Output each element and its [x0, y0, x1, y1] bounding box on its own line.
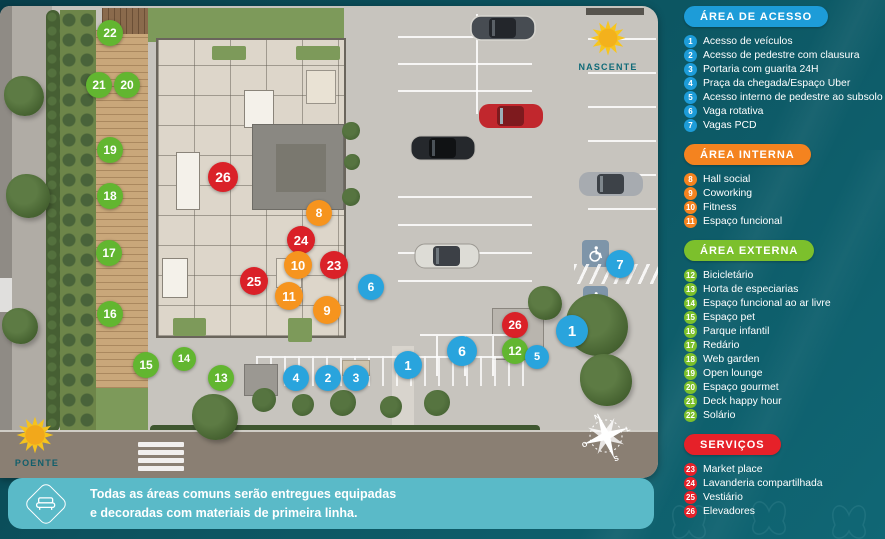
poente-label: POENTE: [6, 458, 68, 468]
legend-item-label: Solário: [703, 410, 735, 421]
bush: [292, 394, 314, 416]
bush: [252, 388, 276, 412]
legend-item-label: Espaço pet: [703, 312, 755, 323]
legend-item-label: Redário: [703, 340, 739, 351]
legend-item-23: 23Market place: [684, 462, 884, 476]
legend-item-2: 2Acesso de pedestre com clausura: [684, 48, 884, 62]
legend-item-number: 21: [684, 395, 697, 408]
legend-item-label: Hall social: [703, 174, 750, 185]
plan-marker-25: 25: [240, 267, 268, 295]
plan-marker-11: 11: [275, 282, 303, 310]
legend-item-4: 4Praça da chegada/Espaço Uber: [684, 76, 884, 90]
legend-item-6: 6Vaga rotativa: [684, 104, 884, 118]
courtyard-green: [288, 318, 312, 342]
plan-marker-17: 17: [96, 240, 122, 266]
legend-item-24: 24Lavanderia compartilhada: [684, 476, 884, 490]
legend-item-number: 2: [684, 49, 697, 62]
plan-marker-14: 14: [172, 347, 196, 371]
legend-item-number: 10: [684, 201, 697, 214]
legend-item-label: Bicicletário: [703, 270, 753, 281]
legend-header-acesso: ÁREA DE ACESSO: [684, 6, 828, 27]
legend-item-number: 20: [684, 381, 697, 394]
tree: [192, 394, 238, 440]
plan-marker-24: 24: [287, 226, 315, 254]
parking-line: [398, 63, 532, 65]
legend-item-1: 1Acesso de veículos: [684, 34, 884, 48]
legend-item-number: 23: [684, 463, 697, 476]
legend-item-number: 13: [684, 283, 697, 296]
legend-item-label: Praça da chegada/Espaço Uber: [703, 78, 850, 89]
plan-marker-15: 15: [133, 352, 159, 378]
parking-line: [492, 336, 494, 376]
sun-poente-icon: [12, 412, 58, 458]
crosswalk-stripe: [138, 458, 184, 463]
tree: [528, 286, 562, 320]
compass-rose: N L S O: [578, 408, 634, 464]
legend-header-externa: ÁREA EXTERNA: [684, 240, 814, 261]
legend-item-11: 11Espaço funcional: [684, 214, 884, 228]
disclaimer-banner: Todas as áreas comuns serão entregues eq…: [8, 478, 654, 529]
legend-item-label: Deck happy hour: [703, 396, 782, 407]
bush: [344, 154, 360, 170]
disclaimer-line-2: e decoradas com materiais de primeira li…: [90, 504, 396, 522]
disclaimer-text: Todas as áreas comuns serão entregues eq…: [90, 485, 396, 521]
legend-item-label: Open lounge: [703, 368, 763, 379]
legend-header-servicos: SERVIÇOS: [684, 434, 781, 455]
legend-item-label: Espaço funcional: [703, 216, 782, 227]
legend-section-servicos: SERVIÇOS23Market place24Lavanderia compa…: [684, 434, 884, 518]
legend-item-22: 22Solário: [684, 408, 884, 422]
legend-item-13: 13Horta de especiarias: [684, 282, 884, 296]
legend-item-number: 18: [684, 353, 697, 366]
tree: [4, 76, 44, 116]
plan-marker-10: 10: [284, 251, 312, 279]
svg-text:S: S: [613, 455, 620, 463]
legend-item-17: 17Redário: [684, 338, 884, 352]
plan-marker-26: 26: [502, 312, 528, 338]
legend-item-label: Acesso interno de pedestre ao subsolo: [703, 92, 883, 103]
legend-item-label: Portaria com guarita 24H: [703, 64, 819, 75]
garden-strip: [60, 10, 96, 430]
plan-marker-22: 22: [97, 20, 123, 46]
plan-marker-4: 4: [283, 365, 309, 391]
legend-sections: ÁREA DE ACESSO1Acesso de veículos2Acesso…: [684, 6, 884, 518]
legend-item-label: Parque infantil: [703, 326, 769, 337]
parking-line: [588, 106, 656, 108]
left-street-curb: [0, 6, 12, 478]
roof-section: [276, 144, 326, 192]
legend-item-number: 1: [684, 35, 697, 48]
parking-line: [398, 90, 532, 92]
plan-marker-2: 2: [315, 365, 341, 391]
legend-item-label: Coworking: [703, 188, 752, 199]
legend-item-label: Web garden: [703, 354, 759, 365]
legend-item-number: 15: [684, 311, 697, 324]
legend-item-15: 15Espaço pet: [684, 310, 884, 324]
legend-item-7: 7Vagas PCD: [684, 118, 884, 132]
legend-item-number: 12: [684, 269, 697, 282]
pcd-sign: [582, 240, 609, 267]
parking-line: [436, 336, 438, 376]
sofa-diamond-icon: [23, 481, 68, 526]
bush: [342, 122, 360, 140]
legend-item-18: 18Web garden: [684, 352, 884, 366]
plan-marker-6: 6: [358, 274, 384, 300]
plan-marker-18: 18: [97, 183, 123, 209]
plan-marker-13: 13: [208, 365, 234, 391]
parking-line: [398, 280, 532, 282]
courtyard-green: [173, 318, 206, 336]
legend-item-label: Elevadores: [703, 506, 755, 517]
legend-item-14: 14Espaço funcional ao ar livre: [684, 296, 884, 310]
plan-marker-20: 20: [114, 72, 140, 98]
legend-item-label: Espaço gourmet: [703, 382, 779, 393]
plan-marker-16: 16: [97, 301, 123, 327]
legend-item-26: 26Elevadores: [684, 504, 884, 518]
legend-item-number: 3: [684, 63, 697, 76]
legend-item-3: 3Portaria com guarita 24H: [684, 62, 884, 76]
legend-item-21: 21Deck happy hour: [684, 394, 884, 408]
legend-item-number: 4: [684, 77, 697, 90]
plan-marker-3: 3: [343, 365, 369, 391]
legend-item-label: Lavanderia compartilhada: [703, 478, 823, 489]
car-red: [478, 102, 544, 130]
legend-panel: ÁREA DE ACESSO1Acesso de veículos2Acesso…: [684, 6, 884, 530]
legend-item-number: 6: [684, 105, 697, 118]
plan-marker-1: 1: [394, 351, 422, 379]
car-silver: [578, 170, 644, 198]
legend-item-number: 25: [684, 491, 697, 504]
legend-item-number: 17: [684, 339, 697, 352]
plan-marker-21: 21: [86, 72, 112, 98]
legend-item-label: Vagas PCD: [703, 120, 757, 131]
car-white: [414, 242, 480, 270]
sofa-icon: [36, 496, 56, 511]
legend-item-number: 11: [684, 215, 697, 228]
wheelchair-icon: [587, 245, 605, 263]
legend-item-label: Espaço funcional ao ar livre: [703, 298, 831, 309]
disclaimer-line-1: Todas as áreas comuns serão entregues eq…: [90, 485, 396, 503]
speed-bump: [586, 8, 644, 15]
nascente-label: NASCENTE: [570, 62, 646, 72]
legend-item-25: 25Vestiário: [684, 490, 884, 504]
legend-item-label: Fitness: [703, 202, 737, 213]
legend-item-9: 9Coworking: [684, 186, 884, 200]
bush: [424, 390, 450, 416]
plan-marker-6: 6: [447, 336, 477, 366]
tree: [580, 354, 632, 406]
plan-marker-26: 26: [208, 162, 238, 192]
legend-item-number: 16: [684, 325, 697, 338]
building-room: [306, 70, 336, 104]
parking-line: [588, 208, 656, 210]
plan-marker-8: 8: [306, 200, 332, 226]
svg-text:L: L: [625, 425, 632, 433]
sun-nascente-icon: [586, 16, 630, 60]
bush: [342, 188, 360, 206]
legend-item-20: 20Espaço gourmet: [684, 380, 884, 394]
plan-marker-5: 5: [525, 345, 549, 369]
tree: [6, 174, 50, 218]
building-room: [176, 152, 200, 210]
plan-marker-23: 23: [320, 251, 348, 279]
legend-section-externa: ÁREA EXTERNA12Bicicletário13Horta de esp…: [684, 240, 884, 422]
legend-item-number: 22: [684, 409, 697, 422]
plan-marker-9: 9: [313, 296, 341, 324]
legend-item-label: Acesso de pedestre com clausura: [703, 50, 860, 61]
legend-item-label: Acesso de veículos: [703, 36, 793, 47]
car-dark: [470, 14, 536, 42]
plan-marker-1: 1: [556, 315, 588, 347]
parking-line: [588, 140, 656, 142]
legend-item-label: Market place: [703, 464, 762, 475]
crosswalk-stripe: [138, 442, 184, 447]
parking-line: [588, 72, 656, 74]
site-plan: NASCENTE POENTE N L S O 2221201918171615…: [0, 6, 658, 478]
tree: [2, 308, 38, 344]
crosswalk-stripe: [138, 466, 184, 471]
legend-item-number: 19: [684, 367, 697, 380]
legend-item-number: 8: [684, 173, 697, 186]
legend-header-interna: ÁREA INTERNA: [684, 144, 811, 165]
legend-section-interna: ÁREA INTERNA8Hall social9Coworking10Fitn…: [684, 144, 884, 228]
courtyard-green: [212, 46, 246, 60]
lawn: [148, 8, 344, 42]
legend-item-8: 8Hall social: [684, 172, 884, 186]
legend-section-acesso: ÁREA DE ACESSO1Acesso de veículos2Acesso…: [684, 6, 884, 132]
legend-item-label: Vaga rotativa: [703, 106, 763, 117]
legend-item-label: Vestiário: [703, 492, 743, 503]
car-black: [410, 134, 476, 162]
plan-marker-19: 19: [97, 137, 123, 163]
hedge: [46, 10, 60, 432]
bottom-street: [0, 430, 658, 478]
legend-item-number: 5: [684, 91, 697, 104]
plan-marker-7: 7: [606, 250, 634, 278]
legend-item-10: 10Fitness: [684, 200, 884, 214]
legend-item-number: 9: [684, 187, 697, 200]
plan-marker-12: 12: [502, 338, 528, 364]
road-marking: [0, 278, 12, 312]
legend-item-16: 16Parque infantil: [684, 324, 884, 338]
legend-item-number: 26: [684, 505, 697, 518]
page: { "plan": { "nascente_label": "NASCENTE"…: [0, 0, 885, 539]
legend-item-label: Horta de especiarias: [703, 284, 798, 295]
building-room: [162, 258, 188, 298]
legend-item-number: 7: [684, 119, 697, 132]
parking-line: [398, 196, 532, 198]
legend-item-number: 14: [684, 297, 697, 310]
legend-item-5: 5Acesso interno de pedestre ao subsolo: [684, 90, 884, 104]
lawn: [96, 388, 148, 432]
building-room: [244, 90, 274, 128]
legend-item-19: 19Open lounge: [684, 366, 884, 380]
crosswalk-stripe: [138, 450, 184, 455]
bush: [330, 390, 356, 416]
legend-item-12: 12Bicicletário: [684, 268, 884, 282]
legend-item-number: 24: [684, 477, 697, 490]
courtyard-green: [296, 46, 340, 60]
parking-line: [398, 224, 532, 226]
